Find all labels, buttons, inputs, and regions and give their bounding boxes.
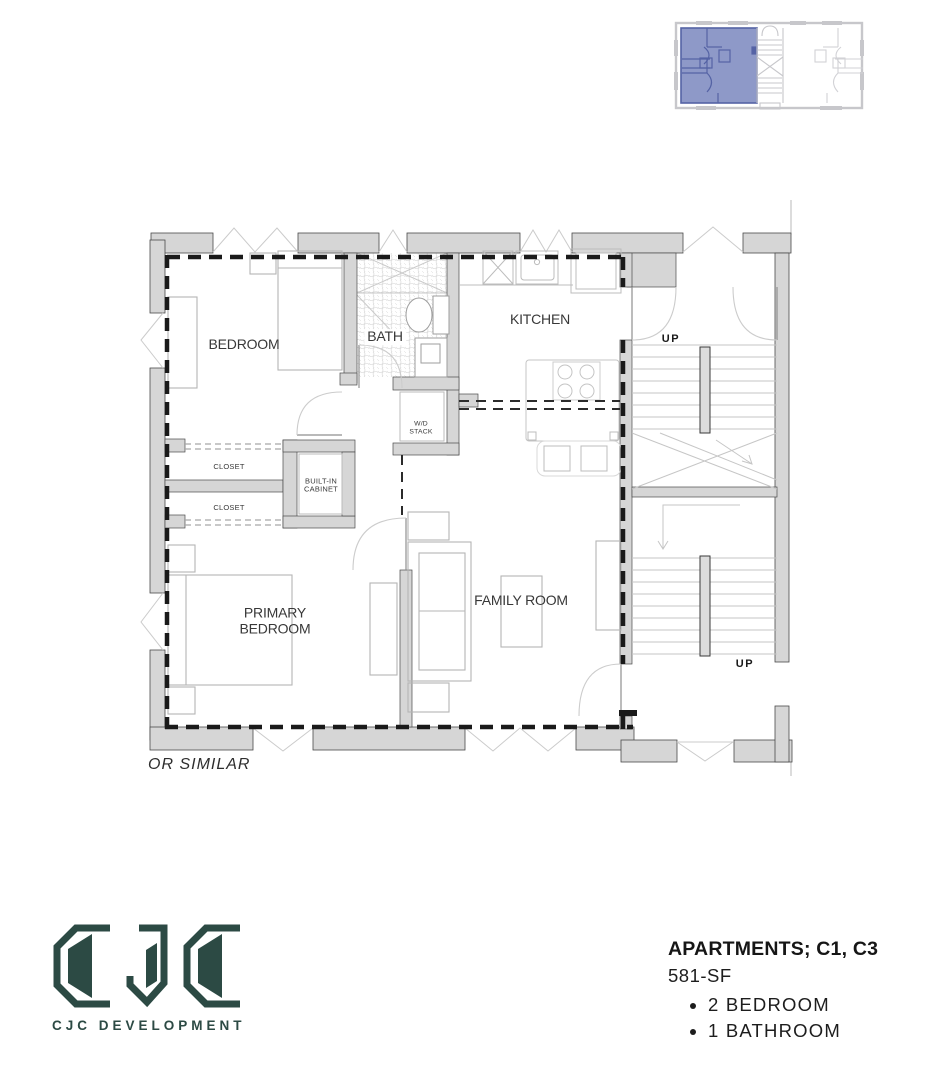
- unit-title: APARTMENTS; C1, C3: [668, 938, 898, 961]
- stairs-upper: [632, 345, 777, 489]
- unit-boundary-corner: [619, 710, 637, 716]
- kitchen-dashed-lines: [402, 401, 620, 515]
- feature-bedrooms: 2 BEDROOM: [708, 992, 898, 1018]
- room-label-kitchen: KITCHEN: [510, 312, 570, 328]
- room-label-closet-2: CLOSET: [213, 504, 244, 512]
- unit-feature-list: 2 BEDROOM 1 BATHROOM: [668, 992, 898, 1044]
- floor-plan-sheet: BEDROOM BATH KITCHEN PRIMARY BEDROOM FAM…: [0, 0, 931, 1074]
- exterior-walls: [150, 233, 792, 762]
- cjc-logo-mark: [57, 928, 240, 1004]
- room-label-closet-1: CLOSET: [213, 463, 244, 471]
- family-room-furniture: [408, 512, 621, 712]
- stairs-lower: [632, 505, 777, 656]
- unit-area: 581-SF: [668, 965, 898, 987]
- plan-drawing: [0, 0, 931, 1074]
- kitchen-fixtures: [459, 249, 621, 476]
- title-block: APARTMENTS; C1, C3 581-SF 2 BEDROOM 1 BA…: [668, 938, 898, 1044]
- room-label-family-room: FAMILY ROOM: [474, 593, 568, 609]
- key-plan-unit-highlight: [681, 28, 757, 103]
- logo-wordmark: CJC DEVELOPMENT: [52, 1018, 246, 1033]
- room-label-built-in-cabinet: BUILT-IN CABINET: [297, 478, 345, 495]
- stair-up-label-1: UP: [662, 333, 680, 345]
- key-plan: [676, 23, 863, 109]
- room-label-primary-bedroom: PRIMARY BEDROOM: [228, 605, 323, 636]
- room-label-bedroom: BEDROOM: [209, 337, 280, 353]
- or-similar-note: OR SIMILAR: [148, 756, 250, 774]
- room-label-wd-stack: W/D STACK: [404, 420, 438, 435]
- stair-up-label-2: UP: [736, 658, 754, 670]
- main-floor-plan: [141, 200, 792, 776]
- feature-bathrooms: 1 BATHROOM: [708, 1018, 898, 1044]
- bedroom-furniture: [168, 251, 342, 388]
- room-label-bath: BATH: [364, 329, 406, 345]
